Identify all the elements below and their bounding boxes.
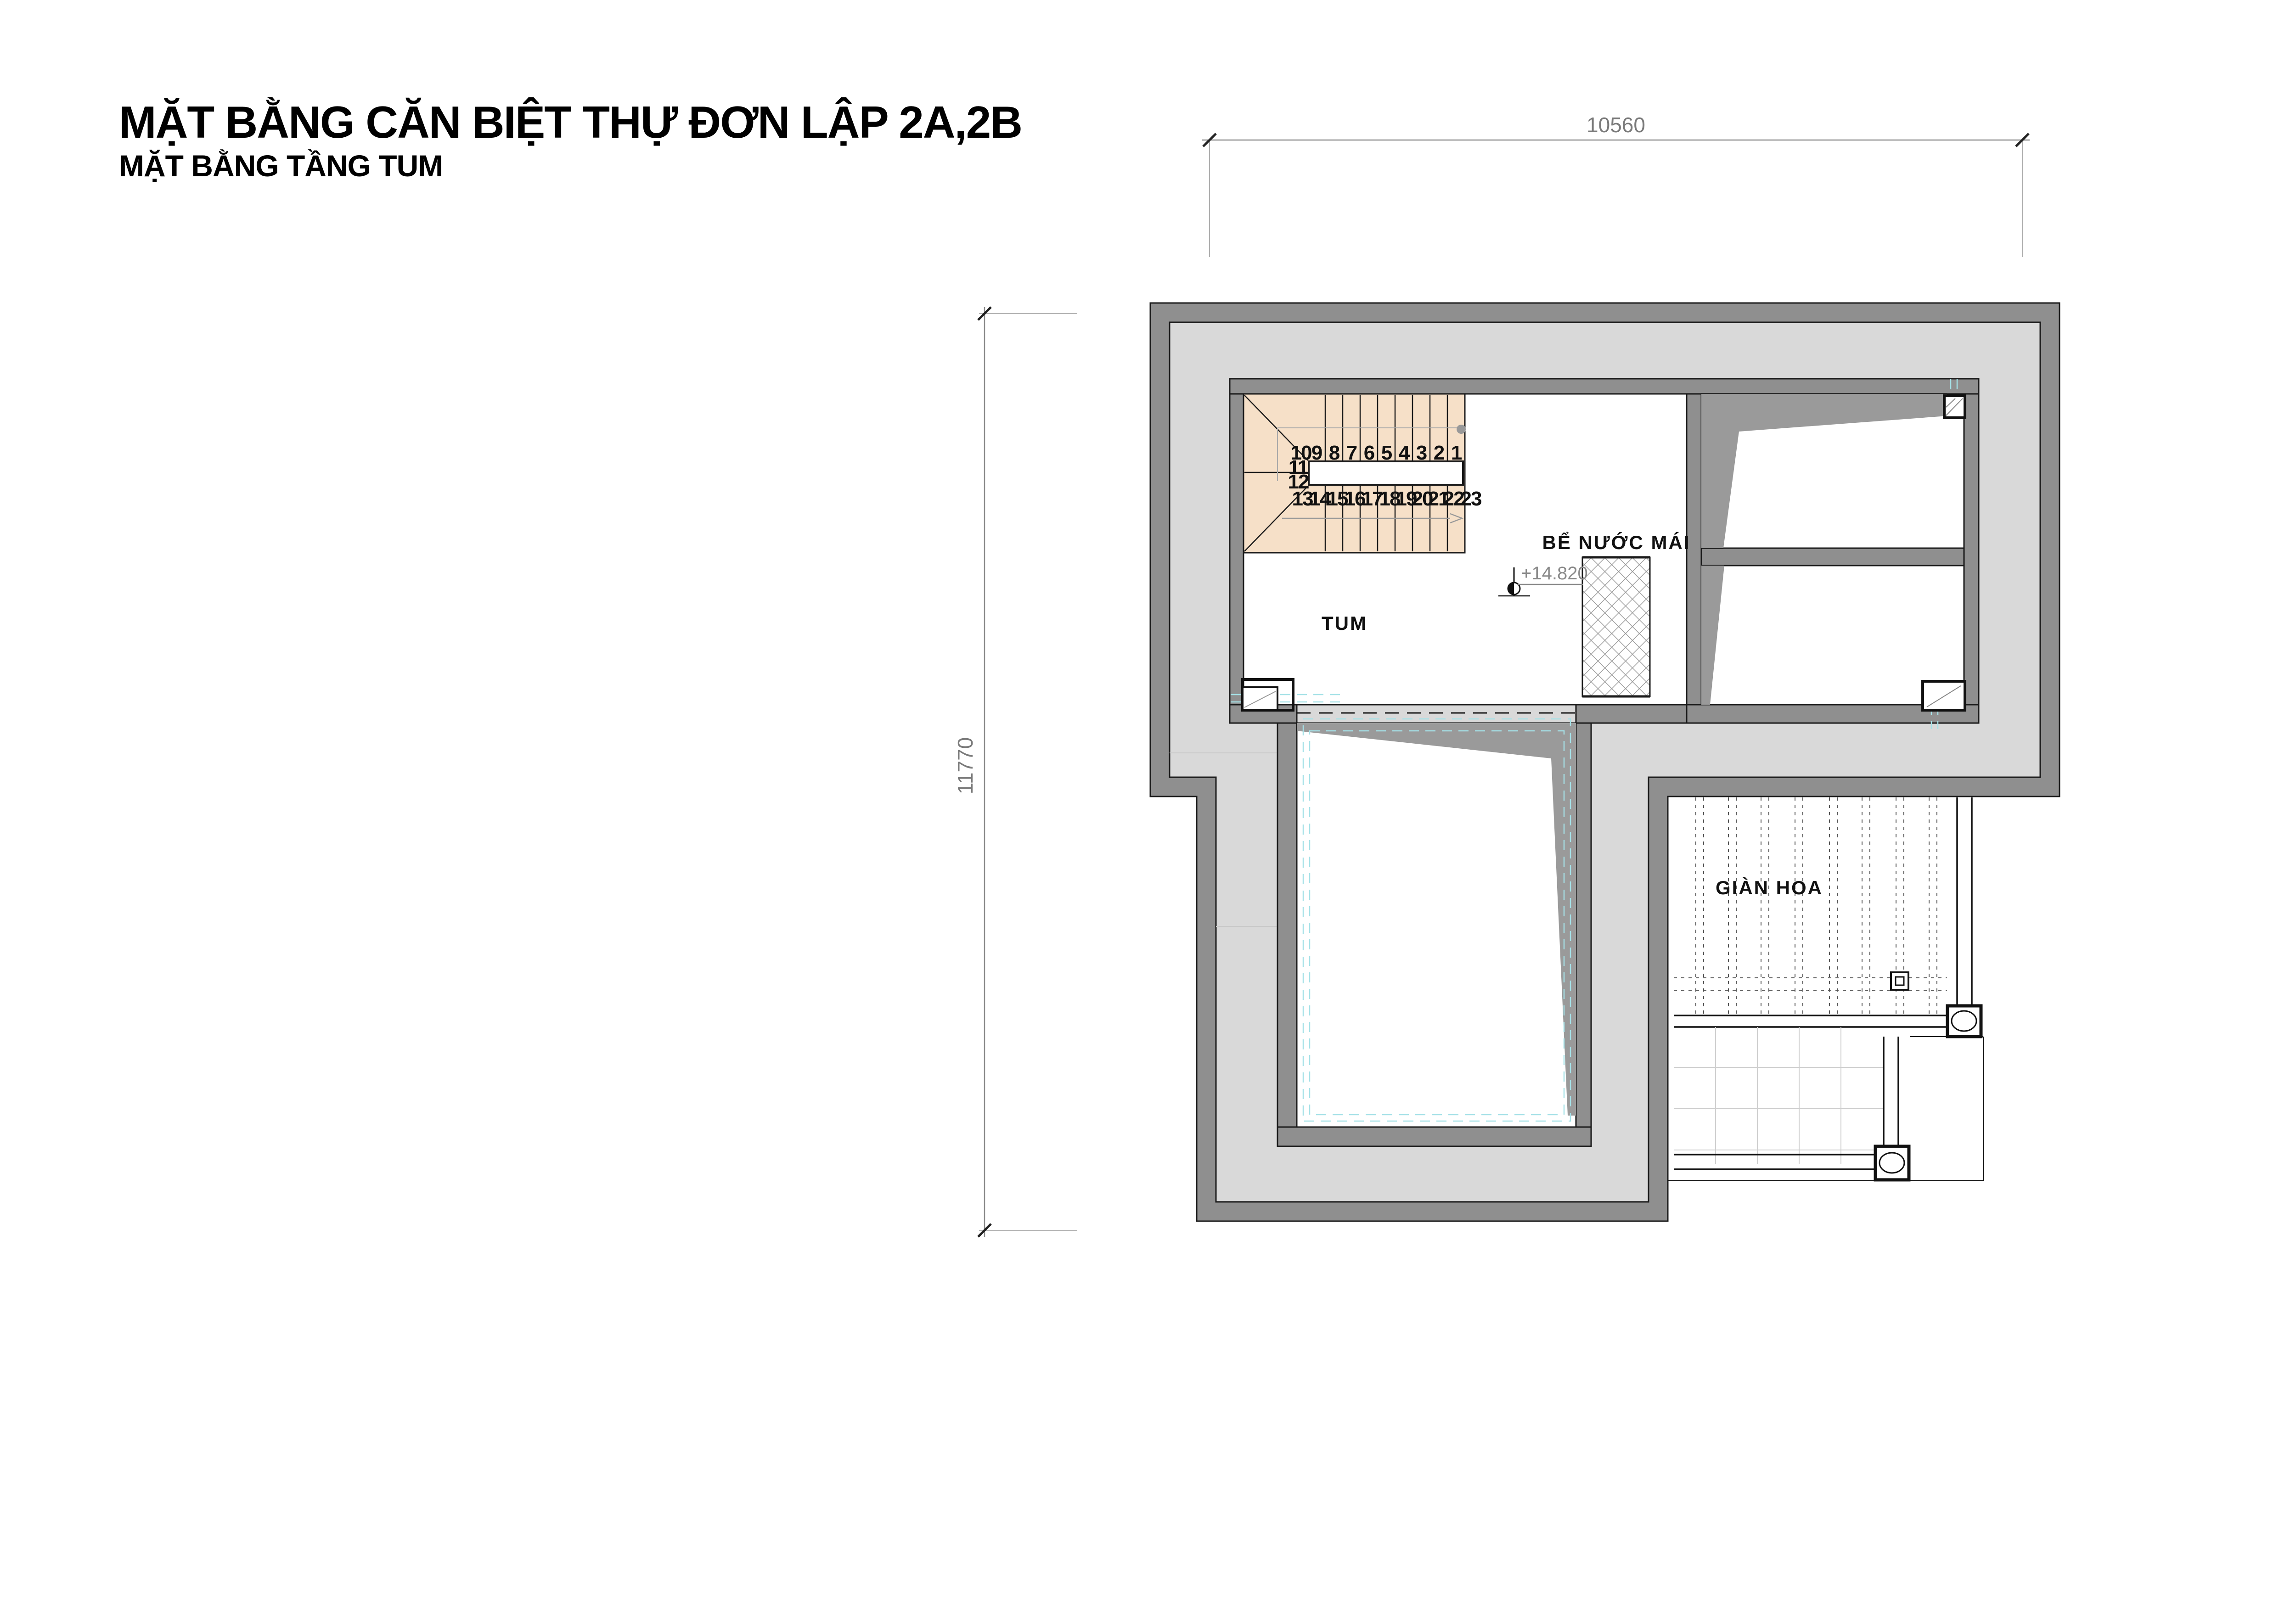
wall-separating	[1687, 394, 1701, 723]
left-dimension: 11770	[953, 307, 1077, 1237]
stair-walkline-start-dot	[1457, 425, 1466, 434]
vent-box-top-right	[1944, 396, 1965, 418]
pergola-column-bottom	[1875, 1146, 1909, 1180]
step-number: 6	[1364, 442, 1374, 464]
dimension-value-left: 11770	[953, 737, 977, 795]
room-label-tum: TUM	[1322, 612, 1367, 634]
drawing-sheet: MẶT BẰNG CĂN BIỆT THỰ ĐƠN LẬP 2A,2B MẶT …	[0, 0, 2296, 1621]
step-number: 5	[1381, 442, 1392, 464]
step-number: 1	[1451, 442, 1462, 464]
tile-grid	[1674, 1027, 1884, 1164]
staircase: 1 2 3 4 5 6 7 8 9 10 11 12 13 14 15 16 1…	[1244, 394, 1481, 553]
step-number: 7	[1346, 442, 1357, 464]
void-wall-left	[1277, 723, 1297, 1146]
wall-bottom-mid	[1576, 705, 1687, 723]
stair-void-opening	[1297, 723, 1576, 1127]
water-tank-hatch	[1582, 557, 1650, 696]
step-number: 8	[1329, 442, 1340, 464]
top-dimension: 10560	[1202, 113, 2030, 257]
wall-top	[1230, 379, 1979, 394]
floor-plan-drawing: 10560 11770	[0, 0, 2296, 1621]
level-value: +14.820	[1521, 563, 1588, 583]
pergola-label: GIÀN HOA	[1716, 877, 1823, 898]
pergola-terrace: GIÀN HOA	[1668, 797, 1983, 1181]
step-number: 2	[1434, 442, 1444, 464]
step-number: 4	[1399, 442, 1410, 464]
step-number: 23	[1461, 488, 1481, 510]
stair-railing-void	[1309, 461, 1463, 485]
wall-tum-left	[1230, 394, 1244, 723]
pergola-column-top	[1947, 1006, 1981, 1037]
dimension-value-top: 10560	[1587, 113, 1645, 137]
step-number: 9	[1311, 442, 1322, 464]
water-tank-label: BỂ NƯỚC MÁI	[1542, 531, 1690, 553]
vent-box-bottom-right	[1923, 681, 1965, 710]
post-detail	[1891, 972, 1908, 990]
void-wall-right	[1576, 723, 1591, 1146]
window-pane	[1243, 687, 1277, 710]
step-number: 3	[1416, 442, 1427, 464]
void-wall-bottom	[1277, 1127, 1591, 1146]
wall-right	[1964, 394, 1979, 723]
wall-mid-right	[1701, 548, 1964, 566]
